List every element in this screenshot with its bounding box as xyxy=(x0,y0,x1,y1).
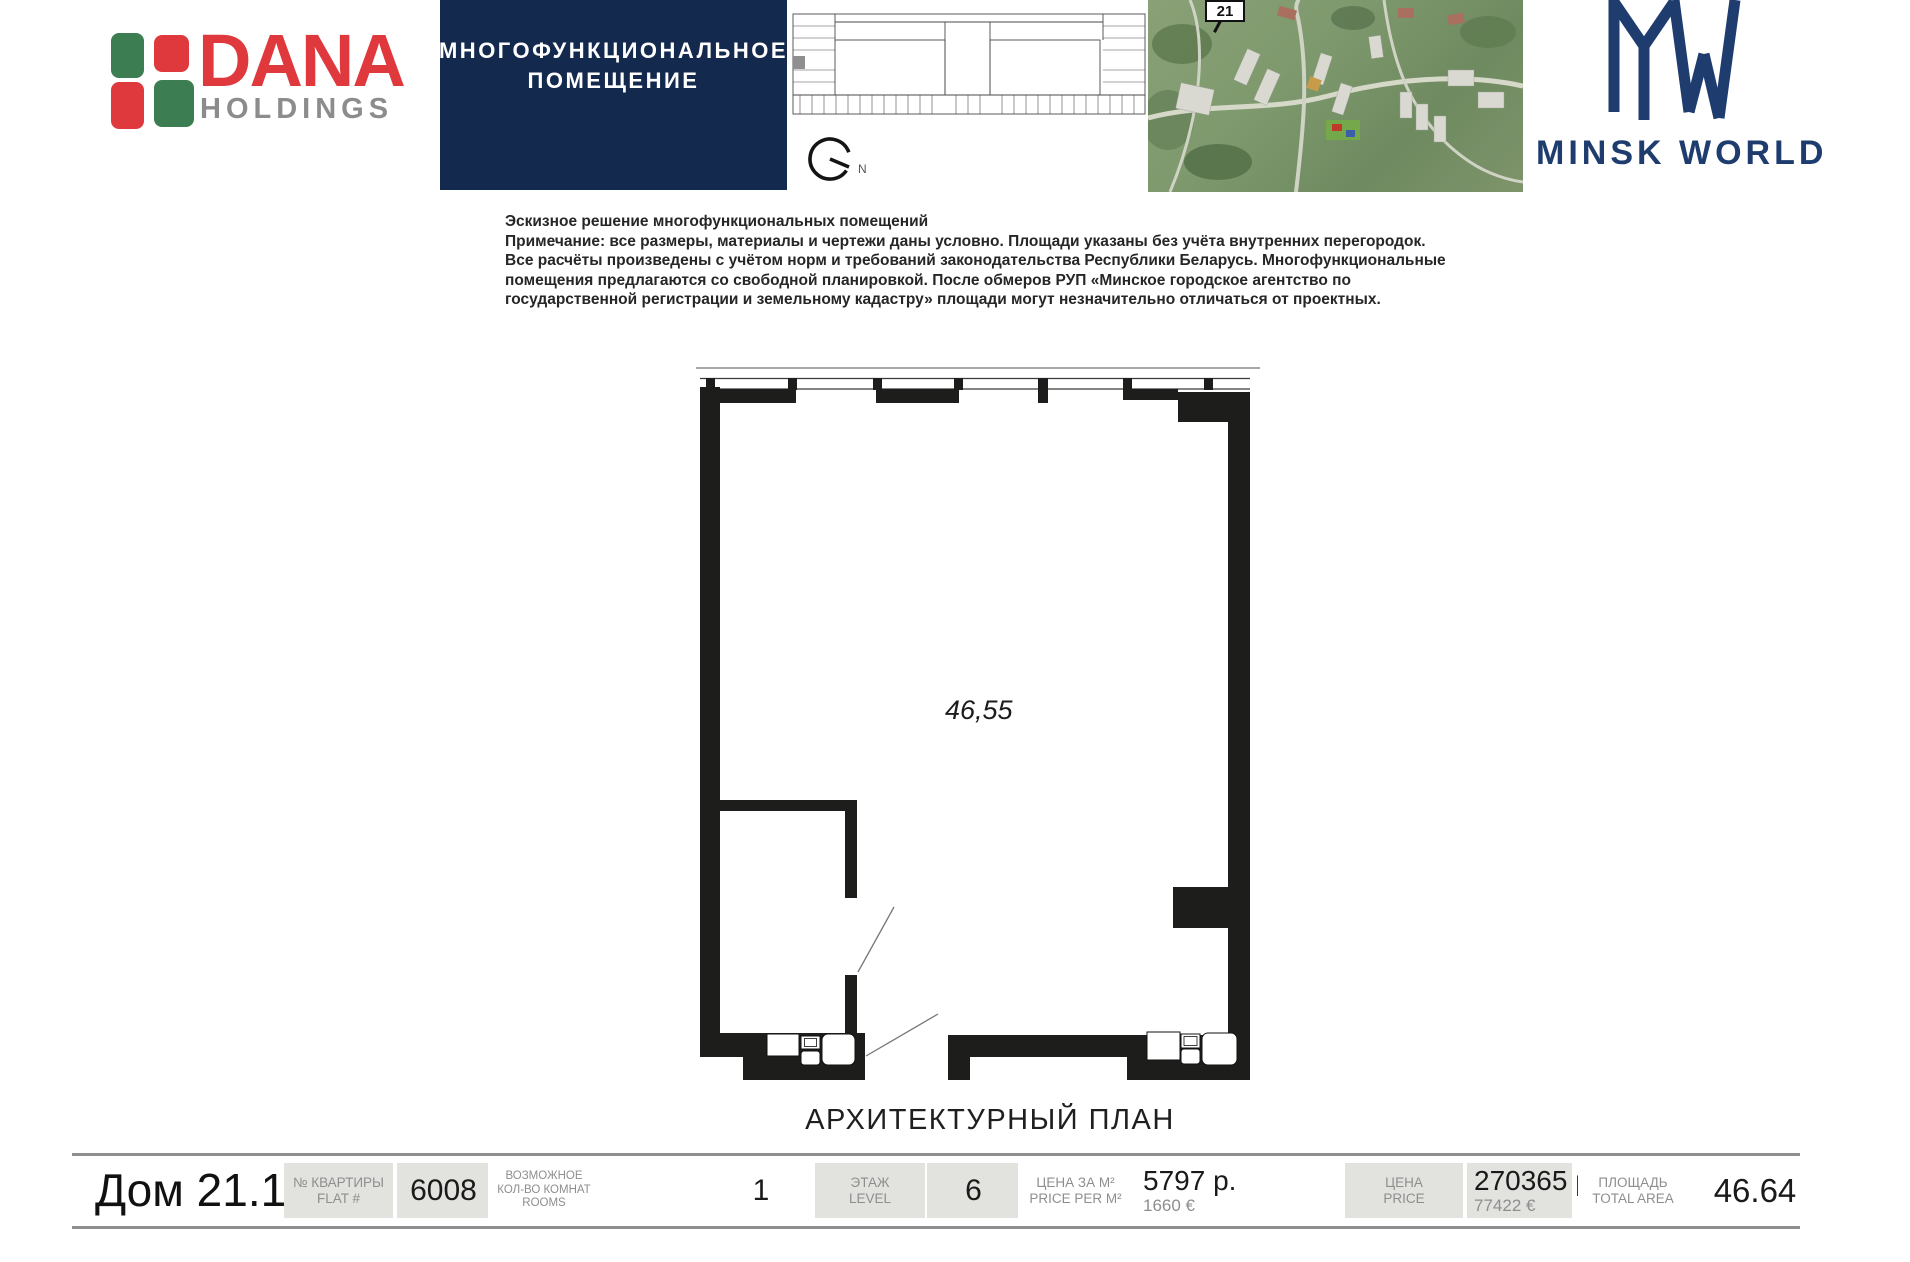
price-value-box: 270365 р. 77422 € xyxy=(1467,1163,1572,1218)
house-title: Дом 21.1 xyxy=(95,1160,286,1220)
flat-number-label-ru: № КВАРТИРЫ xyxy=(293,1175,384,1191)
minsk-world-wordmark: MINSK WORLD xyxy=(1536,134,1826,173)
disclaimer-line: Все расчёты произведены с учётом норм и … xyxy=(505,251,1465,271)
disclaimer-line: Примечание: все размеры, материалы и чер… xyxy=(505,232,1465,252)
price-per-m2-label: ЦЕНА ЗА М² PRICE PER M² xyxy=(1018,1163,1133,1218)
flat-number-label-en: FLAT # xyxy=(317,1191,360,1207)
rooms-count: 1 xyxy=(753,1174,770,1208)
price-per-m2-value: 5797 р. 1660 € xyxy=(1143,1163,1263,1218)
total-area-label: ПЛОЩАДЬ TOTAL AREA xyxy=(1578,1163,1688,1218)
door-swing-lines xyxy=(858,907,938,1056)
rooms-value: 1 xyxy=(705,1163,817,1218)
compass-north-label: N xyxy=(858,162,867,176)
rooms-label-line1: ВОЗМОЖНОЕ xyxy=(506,1170,583,1184)
disclaimer-line: Эскизное решение многофункциональных пом… xyxy=(505,212,1465,232)
price-label-box: ЦЕНА PRICE xyxy=(1345,1163,1463,1218)
dana-logo-wordmark: DANA xyxy=(198,24,404,98)
total-area-label-en: TOTAL AREA xyxy=(1592,1191,1674,1207)
dana-logo-square-green-br xyxy=(154,80,194,127)
aerial-photo xyxy=(1148,0,1523,192)
building-key-plan xyxy=(790,10,1148,122)
dana-logo-square-red-bl xyxy=(111,82,144,129)
flat-number-label-box: № КВАРТИРЫ FLAT # xyxy=(284,1163,393,1218)
dana-holdings-logo: DANA HOLDINGS xyxy=(111,33,421,133)
total-area-value: 46.64 xyxy=(1700,1163,1810,1218)
rooms-label: ВОЗМОЖНОЕ КОЛ-ВО КОМНАТ ROOMS xyxy=(488,1163,600,1218)
building-number-badge: 21 xyxy=(1205,0,1245,22)
summary-bar-top-rule xyxy=(72,1153,1800,1156)
minsk-world-monogram xyxy=(1607,0,1741,126)
dana-logo-square-red-tr xyxy=(154,35,189,72)
price-per-m2-label-ru: ЦЕНА ЗА М² xyxy=(1036,1175,1114,1191)
disclaimer-line: помещения предлагаются со свободной план… xyxy=(505,271,1465,291)
unit-type-line2: ПОМЕЩЕНИЕ xyxy=(528,66,700,96)
price-label-ru: ЦЕНА xyxy=(1385,1175,1423,1191)
dana-logo-subtitle: HOLDINGS xyxy=(200,95,393,124)
flat-number-value-box: 6008 xyxy=(397,1163,490,1218)
flat-number-value: 6008 xyxy=(410,1174,477,1208)
rooms-label-line3: ROOMS xyxy=(522,1197,565,1211)
plan-walls xyxy=(700,378,1250,1080)
building-number: 21 xyxy=(1217,3,1234,20)
north-compass-icon xyxy=(806,131,868,189)
key-plan-unit-highlight xyxy=(793,56,805,69)
plan-caption: АРХИТЕКТУРНЫЙ ПЛАН xyxy=(680,1104,1300,1137)
total-area-label-ru: ПЛОЩАДЬ xyxy=(1598,1175,1667,1191)
disclaimer-text: Эскизное решение многофункциональных пом… xyxy=(505,212,1465,310)
flyer-page: DANA HOLDINGS МНОГОФУНКЦИОНАЛЬНОЕ ПОМЕЩЕ… xyxy=(0,0,1910,1262)
level-value: 6 xyxy=(965,1174,982,1208)
price-eur: 77422 € xyxy=(1474,1196,1535,1215)
level-label-en: LEVEL xyxy=(849,1191,891,1207)
rooms-label-line2: КОЛ-ВО КОМНАТ xyxy=(497,1184,590,1198)
aerial-photo-art xyxy=(1148,0,1523,192)
price-label-en: PRICE xyxy=(1383,1191,1424,1207)
level-label-ru: ЭТАЖ xyxy=(851,1175,890,1191)
level-label-box: ЭТАЖ LEVEL xyxy=(815,1163,925,1218)
level-value-box: 6 xyxy=(927,1163,1020,1218)
price-per-m2-eur: 1660 € xyxy=(1143,1196,1263,1215)
unit-type-line1: МНОГОФУНКЦИОНАЛЬНОЕ xyxy=(439,36,788,66)
dana-logo-square-green-tl xyxy=(111,33,144,78)
unit-type-banner: МНОГОФУНКЦИОНАЛЬНОЕ ПОМЕЩЕНИЕ xyxy=(440,0,787,190)
price-per-m2-label-en: PRICE PER M² xyxy=(1029,1191,1121,1207)
key-plan-outline xyxy=(793,14,1145,114)
apartment-floor-plan: 46,55 xyxy=(680,350,1300,1110)
facade-window-lines xyxy=(696,368,1260,389)
summary-bar-bottom-rule xyxy=(72,1226,1800,1229)
disclaimer-line: государственной регистрации и земельному… xyxy=(505,290,1465,310)
room-area-label: 46,55 xyxy=(945,695,1014,725)
price-per-m2-byn: 5797 р. xyxy=(1143,1166,1263,1196)
